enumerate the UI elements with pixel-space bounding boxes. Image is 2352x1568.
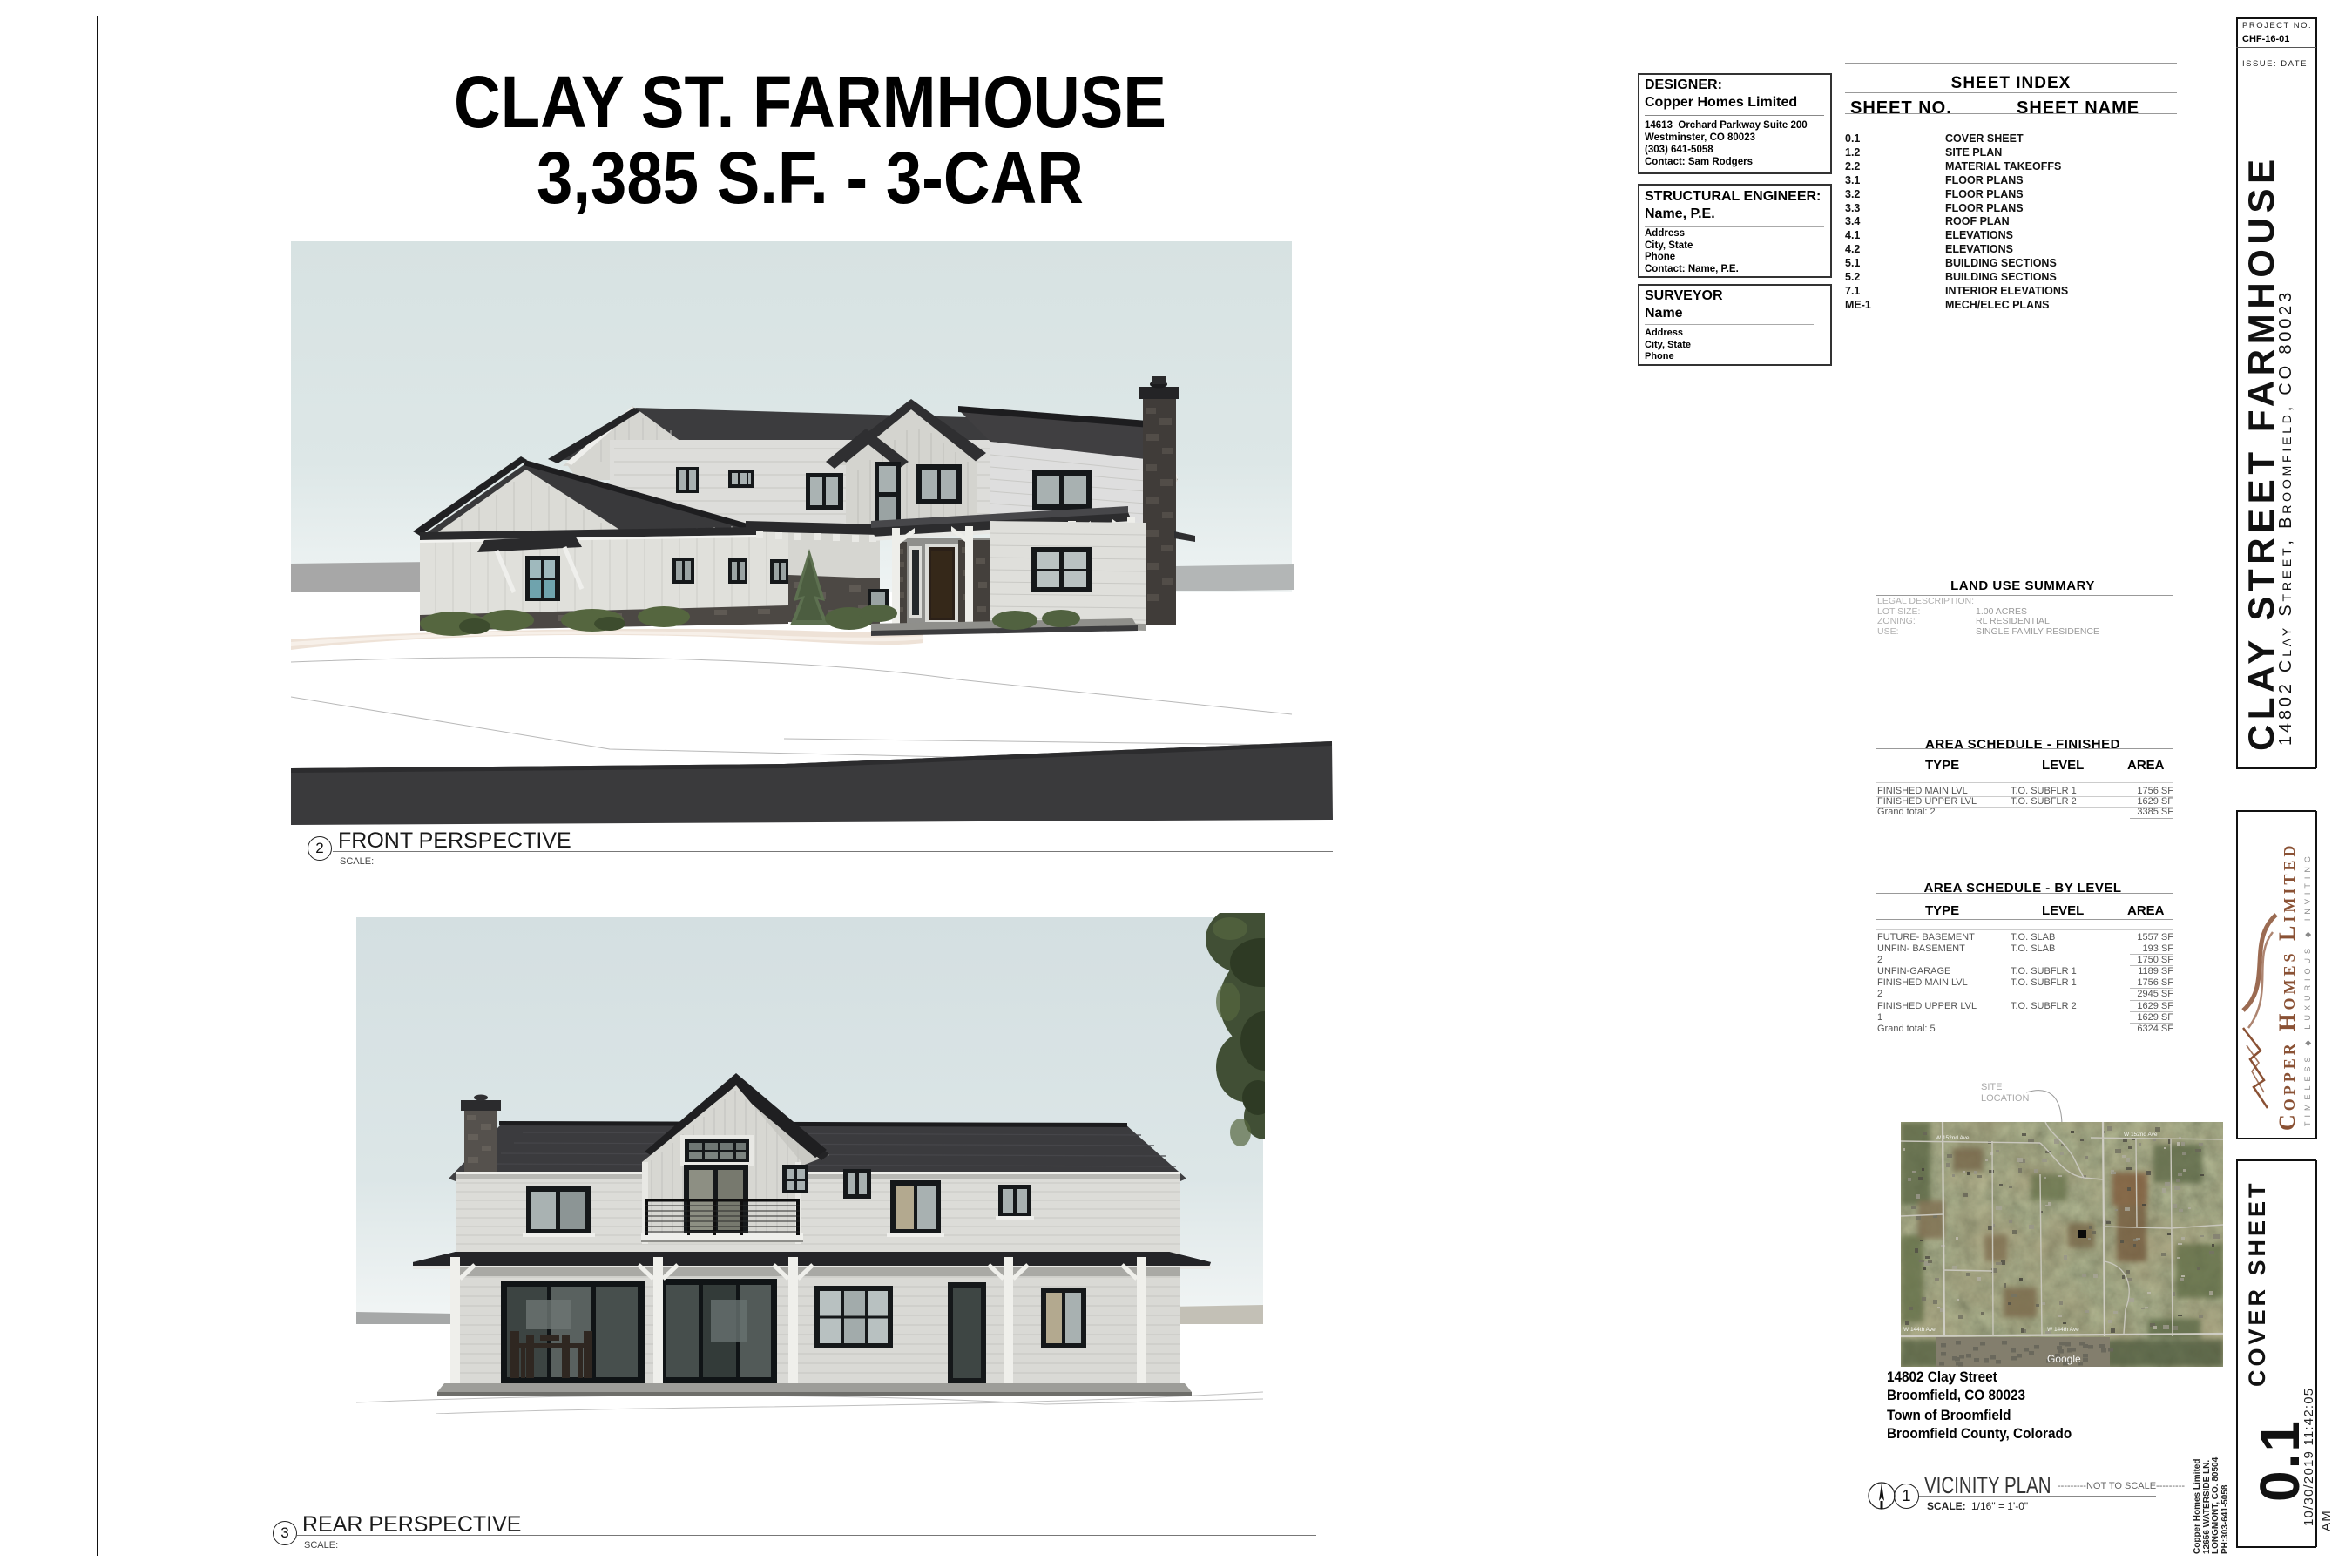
svg-text:W 152nd Ave: W 152nd Ave <box>2124 1132 2158 1138</box>
svg-text:W 144th Ave: W 144th Ave <box>1903 1327 1936 1333</box>
svg-text:W 144th Ave: W 144th Ave <box>2047 1327 2079 1333</box>
svg-text:Google: Google <box>2047 1353 2081 1365</box>
svg-text:W 152nd Ave: W 152nd Ave <box>1936 1135 1970 1141</box>
